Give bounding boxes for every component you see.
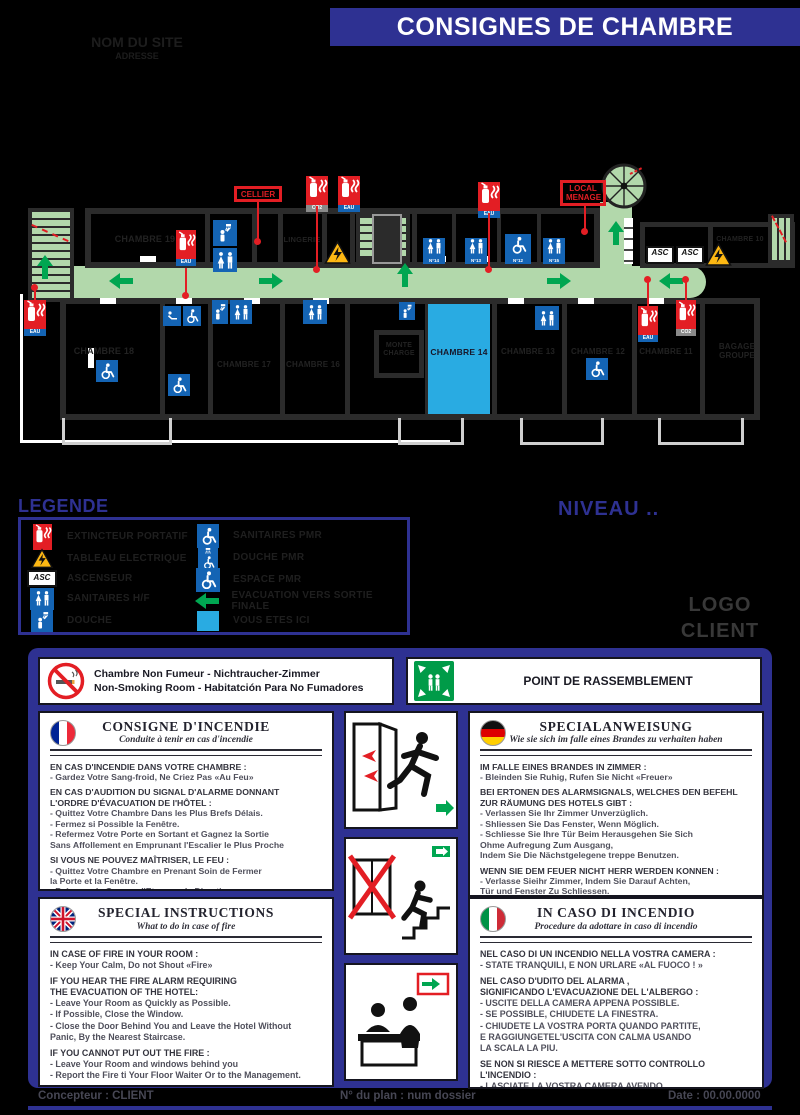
section-heading: SI VOUS NE POUVEZ MAÎTRISER, LE FEU : [50,855,322,865]
electrical-panel-icon [705,242,732,267]
elevator-icon: ASC [27,570,57,587]
exit-arrow-right-icon [258,272,284,290]
client-logo: LOGO CLIENT [655,592,785,644]
legend-left-column: EXTINCTEUR PORTATIF TABLEAU ELECTRIQUE A… [27,525,207,631]
door-gap [578,298,594,304]
elevator-label: ASC [676,246,704,264]
level-label: NIVEAU .. [558,498,659,521]
door-gap [100,298,116,304]
wheelchair-icon [193,568,223,592]
legend-item: SANITAIRES H/F [27,589,207,609]
wall [205,214,210,262]
red-connector [257,202,259,240]
section-heading: IM FALLE EINES BRANDES IN ZIMMER : [480,762,752,772]
room-safety-poster: CONSIGNES DE CHAMBRE NOM DU SITE ADRESSE [0,0,800,1115]
you-are-here-room [428,304,490,414]
wc-icon [230,300,252,324]
divider [480,749,752,756]
section-heading: EN CAS D'AUDITION DU SIGNAL D'ALARME DON… [50,787,322,808]
balcony [62,418,172,445]
door-gap [648,298,664,304]
assembly-point-icon [414,661,454,701]
card-subtitle: Conduite à tenir en cas d'incendie [50,735,322,746]
legend-item: ASC ASCENSEUR [27,569,207,589]
wheelchair-icon [586,358,608,380]
room-label: CHAMBRE 13 [496,347,560,356]
wc-icon: N°14 [423,238,445,264]
no-smoking-notice: Chambre Non Fumeur - Nichtraucher-Zimmer… [38,657,394,705]
door-gap [140,256,156,262]
wall [497,214,501,262]
legend-item: ESPACE PMR [193,569,405,591]
card-title: SPECIALANWEISUNG [480,719,752,735]
section-heading: IN CASE OF FIRE IN YOUR ROOM : [50,949,322,960]
wall [537,214,541,262]
card-title: CONSIGNE D'INCENDIE [50,719,322,735]
floor-plan: CHAMBRE 19 LINGERIE CHAMBRE 10 CHAMBRE 1… [0,0,800,470]
section-body: - USCITE DELLA CAMERA APPENA POSSIBLE. -… [480,998,752,1054]
legend-box: EXTINCTEUR PORTATIF TABLEAU ELECTRIQUE A… [18,517,410,635]
shower-icon [399,302,415,320]
wall [412,214,417,262]
shower-icon [212,300,228,324]
section-body: - Keep Your Calm, Do not Shout «Fire» [50,960,322,971]
italy-flag-icon [480,906,506,932]
room-label: CHAMBRE 18 [66,346,142,356]
italian-instructions-card: IN CASO DI INCENDIO Procedure da adottar… [468,897,764,1089]
exit-arrow-right-icon [546,272,572,290]
exit-arrow-up-icon [396,262,414,288]
room-label: CHAMBRE 12 [566,347,630,356]
legend-title: LEGENDE [18,496,109,517]
balcony [398,418,464,445]
section-heading: IF YOU HEAR THE FIRE ALARM REQUIRING THE… [50,976,322,998]
card-subtitle: Wie sie sich im falle eines Brandes zu v… [480,735,752,746]
red-dot [31,284,38,291]
section-heading: BEI ERTONEN DES ALARMSIGNALS, WELCHES DE… [480,787,752,808]
section-heading: NEL CASO DI UN INCENDIO NELLA VOSTRA CAM… [480,949,752,960]
red-dot [581,228,588,235]
footer-date: Date : 00.00.0000 [668,1090,761,1102]
legend-item: DOUCHE [27,609,207,631]
evacuate-through-door-pictogram [344,711,458,829]
fire-extinguisher-icon: EAU [338,176,360,212]
electrical-panel-icon [27,548,57,569]
card-header: IN CASO DI INCENDIO Procedure da adottar… [480,905,752,934]
card-header: SPECIAL INSTRUCTIONS What to do in case … [50,905,322,934]
card-subtitle: What to do in case of fire [50,922,322,934]
room-label: CHAMBRE 14 [426,348,492,358]
section-body: - Leave Your Room as Quickly as Possible… [50,998,322,1043]
divider [480,936,752,943]
uk-flag-icon [50,906,76,932]
stair-door [374,216,400,262]
spiral-staircase [600,162,648,210]
footer-divider [28,1106,772,1110]
section-body: - Leave Your Room and windows behind you… [50,1059,322,1081]
section-body: - Gardez Votre Sang-froid, Ne Criez Pas … [50,772,322,782]
wc-pmr-icon: N°12 [505,234,531,264]
wc-icon [535,306,559,330]
shower-icon [213,220,237,246]
wheelchair-icon [183,306,201,326]
wall [562,304,567,414]
section-heading: IF YOU CANNOT PUT OUT THE FIRE : [50,1048,322,1059]
exit-arrow-left-icon [108,272,134,290]
room-label: CHAMBRE 16 [284,360,342,369]
red-connector [647,280,649,306]
no-smoking-text: Chambre Non Fumeur - Nichtraucher-Zimmer… [94,667,364,695]
assembly-point-notice: POINT DE RASSEMBLEMENT [406,657,762,705]
exit-arrow-up-icon [607,220,625,246]
fire-extinguisher-icon: EAU [176,230,196,266]
red-connector [316,206,318,268]
fire-extinguisher-icon: EAU [24,300,46,336]
wc-icon [303,300,327,324]
corridor-window [624,218,633,264]
divider [50,749,322,756]
footer-designer: Concepteur : CLIENT [38,1090,154,1102]
footer-plan-number: N° du plan : num dossier [340,1090,476,1102]
section-body: - STATE TRANQUILI, E NON URLARE «AL FUOC… [480,960,752,971]
section-body: - LASCIATE LA VOSTRA CAMERA AVENDO L'ACC… [480,1081,752,1089]
red-dot [682,276,689,283]
wall [452,214,456,262]
section-heading: EN CAS D'INCENDIE DANS VOTRE CHAMBRE : [50,762,322,772]
red-connector [685,280,687,300]
wall [345,304,350,414]
room-label: CHAMBRE 11 [634,347,698,356]
red-dot [254,238,261,245]
legend-item: VOUS ETES ICI [193,611,405,631]
wall [632,304,637,414]
wheelchair-icon [168,374,190,396]
legend-item: TABLEAU ELECTRIQUE [27,549,207,569]
section-heading: SE NON SI RIESCE A METTERE SOTTO CONTROL… [480,1059,752,1081]
red-dot [485,266,492,273]
legend-item: EVACUATION VERS SORTIE FINALE [193,591,405,611]
door-gap [508,298,524,304]
section-body: - Verlassen Sie Ihr Zimmer Unverzüglich.… [480,808,752,860]
wc-icon [213,248,237,272]
local-menage-label: LOCAL MENAGE [560,180,606,206]
section-body: - Quittez Votre Chambre Dans les Plus Br… [50,808,322,850]
legend-item: SANITAIRES PMR [193,525,405,547]
room-label: MONTE CHARGE [376,342,422,358]
card-header: CONSIGNE D'INCENDIE Conduite à tenir en … [50,719,322,747]
card-title: SPECIAL INSTRUCTIONS [50,905,322,922]
exit-arrow-left-icon [658,272,684,290]
france-flag-icon [50,720,76,746]
report-to-reception-pictogram [344,963,458,1081]
shower-icon [27,608,57,632]
fire-extinguisher-icon: EAU [638,306,658,342]
you-are-here-icon [193,611,223,631]
wc-icon: N°13 [465,238,487,264]
balcony [520,418,604,445]
section-body: - Quittez Votre Chambre en Prenant Soin … [50,866,322,891]
assembly-point-text: POINT DE RASSEMBLEMENT [462,673,754,689]
red-dot [182,292,189,299]
wheelchair-icon [96,360,118,382]
room-label: BAGAGE GROUPE [706,342,768,360]
legend-right-column: SANITAIRES PMR DOUCHE PMR ESPACE PMR EVA… [193,525,405,631]
shower-pmr-icon [193,546,223,570]
card-header: SPECIALANWEISUNG Wie sie sich im falle e… [480,719,752,747]
electrical-panel-icon [324,240,351,265]
wc-pmr-icon [193,524,223,548]
fire-extinguisher-icon: CO2 [676,300,696,336]
exit-arrow-up-icon [36,254,54,280]
evacuation-arrow-icon [193,592,222,610]
wall [492,304,497,414]
outer-wall [20,294,23,442]
red-dot [313,266,320,273]
section-heading: WENN SIE DEM FEUER NICHT HERR WERDEN KON… [480,866,752,876]
wall [280,304,285,414]
elevator-label: ASC [646,246,674,264]
red-dot [644,276,651,283]
wc-icon: N°15 [543,238,565,264]
english-instructions-card: SPECIAL INSTRUCTIONS What to do in case … [38,897,334,1087]
card-title: IN CASO DI INCENDIO [480,905,752,922]
card-subtitle: Procedure da adottare in caso di incendi… [480,922,752,934]
no-smoking-icon [46,661,86,701]
section-body: - Bleinden Sie Ruhig, Rufen Sie Nicht «F… [480,772,752,782]
legend-item: DOUCHE PMR [193,547,405,569]
fire-extinguisher-icon [27,524,57,550]
german-instructions-card: SPECIALANWEISUNG Wie sie sich im falle e… [468,711,764,897]
french-instructions-card: CONSIGNE D'INCENDIE Conduite à tenir en … [38,711,334,891]
staircase-right [768,214,794,264]
wall [700,304,705,414]
room-label: CHAMBRE 17 [212,360,276,369]
balcony [658,418,744,445]
cellier-label: CELLIER [234,186,282,202]
baby-change-icon [163,306,181,326]
divider [50,936,322,943]
red-connector [584,206,586,230]
section-heading: NEL CASO D'UDITO DEL ALARMA , SIGNIFICAN… [480,976,752,998]
wc-icon [27,588,57,610]
legend-item: EXTINCTEUR PORTATIF [27,525,207,549]
red-connector [488,213,490,270]
do-not-use-elevator-pictogram [344,837,458,955]
germany-flag-icon [480,720,506,746]
section-body: - Verlasse Sieihr Zimmer, Indem Sie Dara… [480,876,752,897]
